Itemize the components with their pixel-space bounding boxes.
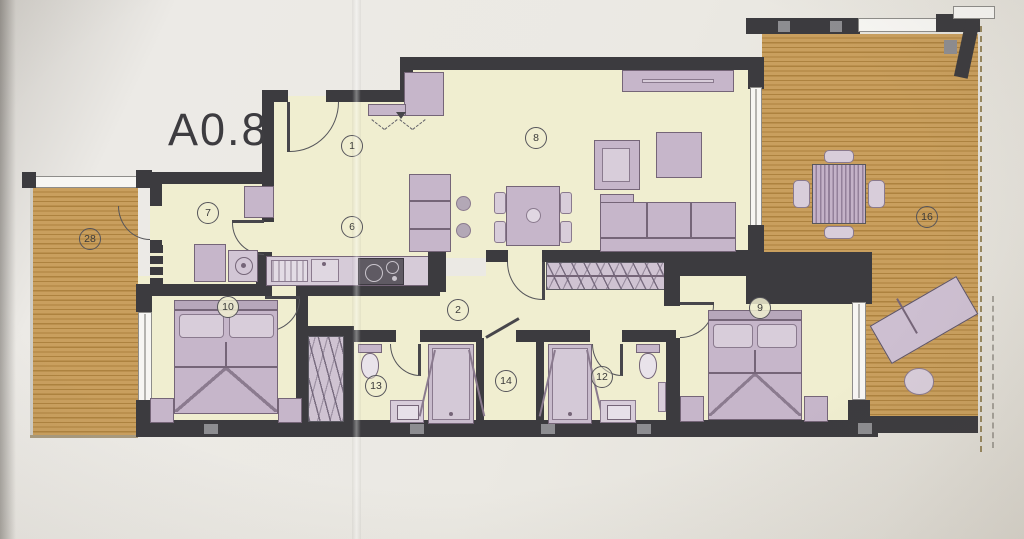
appliance	[194, 244, 226, 282]
washer-door-center	[241, 263, 246, 268]
terrace-table	[812, 164, 866, 224]
passage-door-leaf	[542, 262, 545, 300]
bathroom-cabinet	[658, 382, 666, 412]
paper-edge-shadow	[0, 0, 16, 539]
wall	[428, 252, 446, 292]
wall	[746, 252, 872, 304]
room-number-terrace-side: 28	[79, 228, 101, 250]
wall	[150, 172, 162, 206]
bar-stool	[456, 223, 471, 238]
wall	[622, 330, 676, 342]
dining-chair	[560, 221, 572, 243]
room-number-terrace-main: 16	[916, 206, 938, 228]
terrace-sliding-door	[750, 87, 762, 227]
bedroom2-window	[852, 302, 866, 400]
terrace-side-railing	[30, 176, 140, 188]
bedside-bench	[278, 398, 302, 423]
bedroom1-window	[138, 312, 152, 402]
pillow	[713, 324, 753, 348]
paper-tab	[953, 6, 995, 19]
deck-edge	[30, 435, 138, 438]
sofa-seam	[690, 203, 692, 237]
room-number-living: 8	[525, 127, 547, 149]
table-centerpiece	[526, 208, 541, 223]
shower-drain	[568, 412, 572, 416]
wall	[400, 57, 764, 70]
wall-post	[204, 424, 218, 434]
shower-drain	[449, 412, 453, 416]
wall-post	[830, 21, 842, 32]
entrance-arrowhead	[396, 112, 406, 119]
utility-shelf	[150, 245, 163, 253]
blanket-fold	[755, 374, 801, 416]
railing-edge	[30, 188, 33, 436]
burner	[386, 261, 399, 274]
terrace-glass-panel	[858, 18, 938, 32]
dining-chair	[560, 192, 572, 214]
pillow	[757, 324, 797, 348]
wall	[296, 326, 348, 336]
room-number-bathroom1: 13	[365, 375, 387, 397]
floor-plan-page: { "unit_label": "A0.8", "rooms": { "entr…	[0, 0, 1024, 539]
sofa	[600, 202, 736, 252]
terrace-chair	[824, 150, 854, 163]
terrace-chair	[868, 180, 885, 208]
utility-shelf	[150, 256, 163, 264]
room-number-hallway: 2	[447, 299, 469, 321]
wall	[148, 172, 274, 184]
wardrobe-rail	[547, 275, 665, 277]
island-divider	[409, 228, 451, 230]
sink-basin	[607, 405, 631, 420]
room-number-bedroom2: 9	[749, 297, 771, 319]
armchair-seat	[602, 148, 630, 182]
dining-chair	[494, 221, 506, 243]
wall	[664, 262, 750, 276]
unit-label: A0.8	[168, 104, 269, 156]
terrace-side-table	[904, 368, 934, 395]
wall-post	[541, 424, 555, 434]
bed-center-line	[225, 342, 227, 366]
wall	[516, 330, 590, 342]
burner	[365, 264, 383, 282]
terrace-main-deck	[762, 34, 978, 260]
burner-knob	[392, 276, 397, 281]
bedside-bench	[150, 398, 174, 423]
room-number-utility: 7	[197, 202, 219, 224]
wall	[864, 416, 978, 433]
paper-crease	[352, 0, 361, 539]
wall-post	[410, 424, 424, 434]
sink-basin	[397, 405, 419, 420]
nightstand	[680, 396, 704, 422]
hall-closet	[404, 72, 444, 116]
nightstand	[804, 396, 828, 422]
wall	[666, 338, 680, 424]
bed-center-line	[754, 350, 756, 372]
wall	[420, 330, 482, 342]
wall-post	[778, 21, 790, 32]
shower-tray	[552, 348, 588, 420]
terrace-side-deck	[33, 188, 138, 436]
wall	[136, 284, 152, 312]
sofa-seam	[646, 203, 648, 237]
wall-post	[944, 40, 957, 54]
boundary-dashed-line	[992, 296, 994, 448]
kitchen-island	[409, 174, 451, 252]
wall	[326, 90, 412, 102]
bedroom1-wardrobe	[308, 336, 344, 422]
dining-chair	[494, 192, 506, 214]
sideboard-slot	[642, 79, 714, 83]
blanket-fold	[709, 374, 755, 416]
blanket-fold	[175, 368, 226, 412]
side-table-square	[656, 132, 702, 178]
toilet-bowl	[639, 353, 657, 379]
toilet-tank	[636, 344, 660, 353]
refrigerator	[244, 186, 274, 218]
wall	[22, 172, 36, 188]
wall	[746, 18, 860, 34]
wall	[748, 57, 764, 89]
toilet-tank	[358, 344, 382, 353]
blanket-fold	[226, 368, 277, 412]
wall-post	[637, 424, 651, 434]
pillow	[229, 314, 274, 338]
sink-tap	[322, 262, 326, 266]
boundary-dashed-line	[980, 26, 982, 452]
terrace-chair	[824, 226, 854, 239]
room-number-bathroom2: 12	[591, 366, 613, 388]
sofa-back-line	[601, 237, 735, 239]
terrace-chair	[793, 180, 810, 208]
wall	[486, 250, 508, 262]
shower-tray	[432, 348, 470, 420]
bar-stool	[456, 196, 471, 211]
wall-post	[858, 423, 872, 434]
room-number-innerhall: 14	[495, 370, 517, 392]
floor-plan: 1 2 6 7 8 9 10 12 13 14 16 28 A0.8	[0, 0, 1024, 539]
room-number-bedroom1: 10	[217, 296, 239, 318]
utility-shelf	[150, 267, 163, 275]
island-divider	[409, 200, 451, 202]
wall	[136, 420, 878, 437]
dish-drainer	[271, 260, 308, 282]
wall	[148, 284, 265, 296]
pillow	[179, 314, 224, 338]
